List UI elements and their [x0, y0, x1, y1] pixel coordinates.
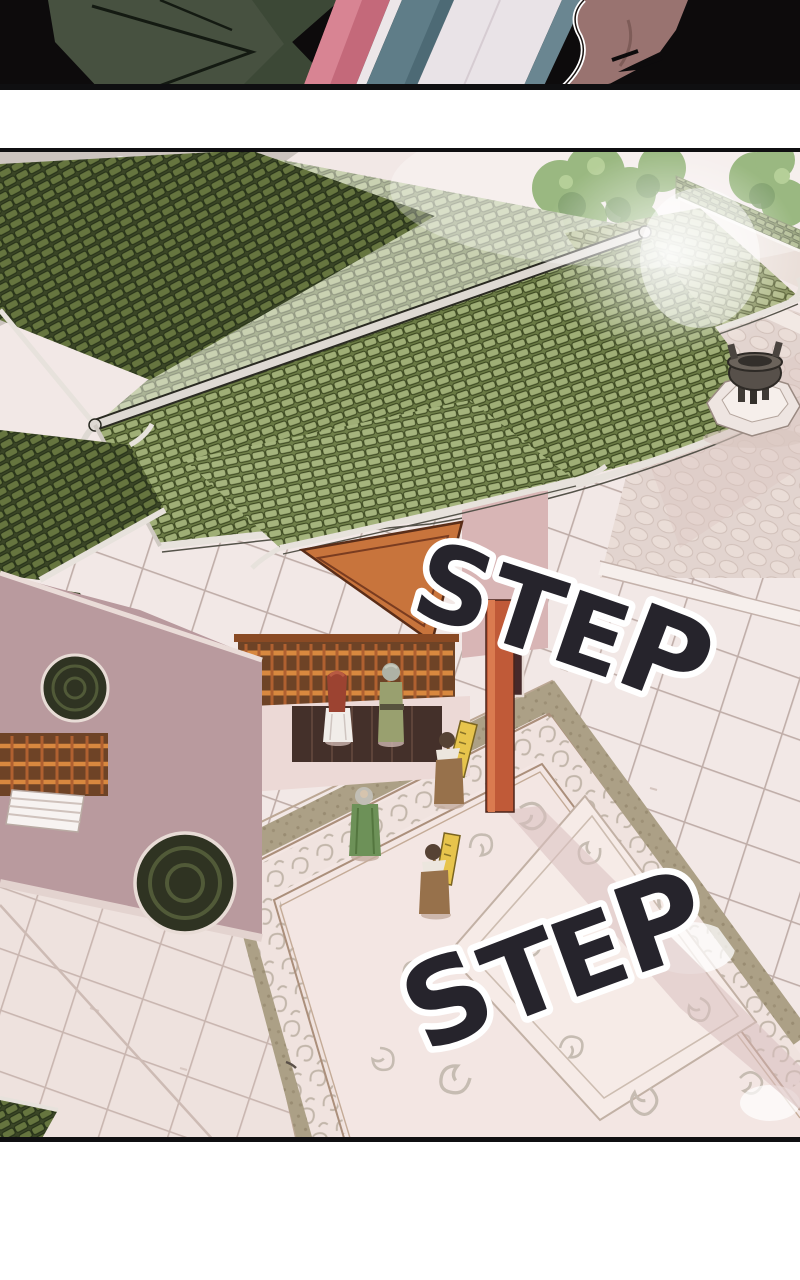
window-medallion-1 [42, 655, 108, 721]
striped-robes [302, 0, 584, 90]
courtyard-panel: S T E P S T E P [0, 148, 800, 1142]
left-lattice-rail [0, 733, 108, 796]
page: S T E P S T E P [0, 0, 800, 1280]
panel-gutter [0, 90, 800, 148]
white-steps [6, 790, 84, 832]
window-medallion-2 [135, 833, 235, 933]
previous-panel [0, 0, 800, 90]
panel-border-top [0, 148, 800, 152]
bottom-margin [0, 1142, 800, 1280]
